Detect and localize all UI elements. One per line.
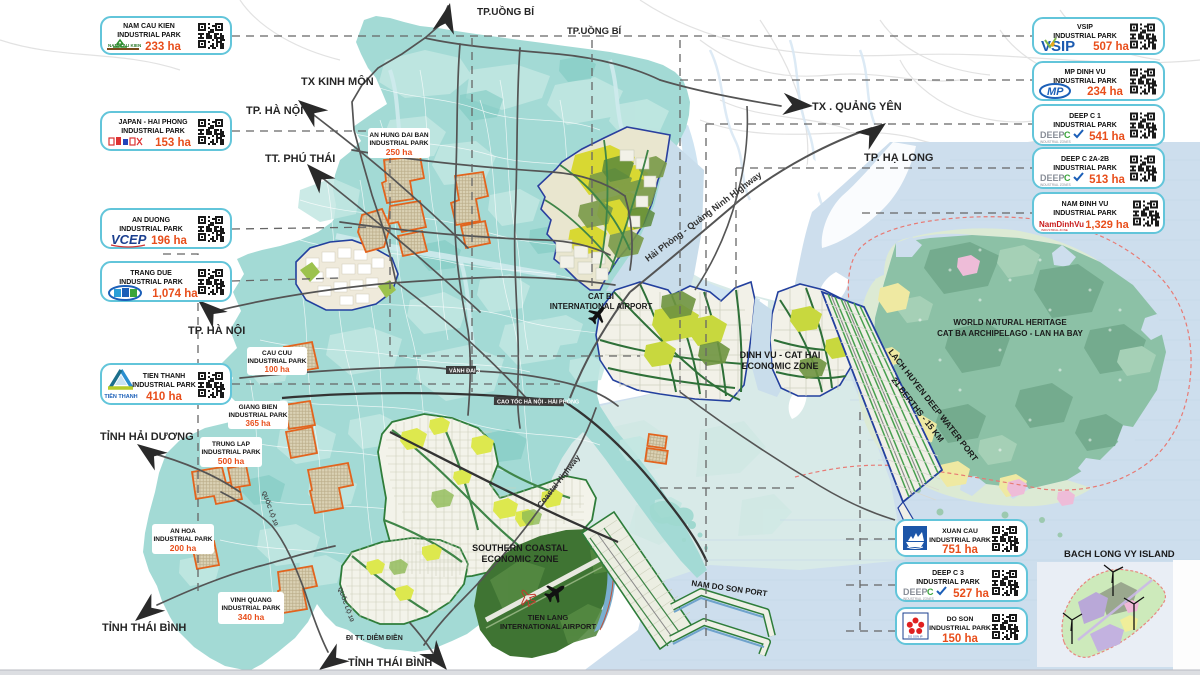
svg-text:TP. HẠ LONG: TP. HẠ LONG [864,152,933,164]
svg-text:ECONOMIC ZONE: ECONOMIC ZONE [741,361,818,371]
svg-text:INDUSTRIAL PARK: INDUSTRIAL PARK [117,32,181,39]
svg-text:INDUSTRIAL PARK: INDUSTRIAL PARK [1053,78,1117,85]
svg-text:JAPAN - HAI PHONG: JAPAN - HAI PHONG [118,119,188,126]
svg-text:INDUSTRIAL PARK: INDUSTRIAL PARK [370,140,429,147]
svg-text:TIEN LANG: TIEN LANG [528,613,569,622]
svg-text:C: C [927,587,934,597]
svg-text:MP DINH VU: MP DINH VU [1064,69,1105,76]
svg-text:BACH LONG VY ISLAND: BACH LONG VY ISLAND [1064,549,1175,560]
svg-text:INDUSTRIAL PARK: INDUSTRIAL PARK [929,537,991,544]
svg-text:INDUSTRIAL PARK: INDUSTRIAL PARK [119,279,183,286]
svg-text:VÀNH ĐAI 3: VÀNH ĐAI 3 [449,368,480,375]
svg-text:153 ha: 153 ha [155,137,191,149]
svg-text:TIEN THANH: TIEN THANH [143,373,185,380]
svg-text:TX . QUẢNG YÊN: TX . QUẢNG YÊN [812,100,902,113]
svg-text:INDUSTRIAL PARK: INDUSTRIAL PARK [229,412,288,419]
svg-text:TP.UỒNG BÍ: TP.UỒNG BÍ [477,5,534,18]
svg-text:CAT BA ARCHIPELAGO - LAN HA BA: CAT BA ARCHIPELAGO - LAN HA BAY [937,329,1083,338]
svg-text:CAU CUU: CAU CUU [262,350,292,357]
svg-text:TỈNH HẢI DƯƠNG: TỈNH HẢI DƯƠNG [100,430,194,443]
svg-text:DEEP: DEEP [1040,173,1065,183]
svg-text:513 ha: 513 ha [1089,174,1125,186]
svg-text:INDUSTRIAL PARK: INDUSTRIAL PARK [121,128,185,135]
svg-text:TỈNH THÁI BÌNH: TỈNH THÁI BÌNH [348,656,432,669]
svg-text:XUAN CAU: XUAN CAU [942,528,978,535]
svg-text:751 ha: 751 ha [942,544,978,556]
svg-text:DEEP: DEEP [903,587,928,597]
svg-text:DEEP: DEEP [1040,130,1065,140]
svg-text:DINH VU - CAT HAI: DINH VU - CAT HAI [740,350,821,360]
svg-text:AN HUNG DAI BAN: AN HUNG DAI BAN [369,132,429,139]
svg-text:INDUSTRIAL ZONE: INDUSTRIAL ZONE [1041,228,1068,232]
svg-text:233 ha: 233 ha [145,41,181,53]
svg-text:NAM CAU KIEN: NAM CAU KIEN [123,23,175,30]
svg-text:200 ha: 200 ha [170,543,197,553]
svg-text:INDUSTRIAL PARK: INDUSTRIAL PARK [1053,165,1117,172]
svg-text:INTERNATIONAL AIRPORT: INTERNATIONAL AIRPORT [500,622,597,631]
svg-text:150 ha: 150 ha [942,633,978,645]
svg-text:TỈNH THÁI BÌNH: TỈNH THÁI BÌNH [102,621,186,634]
svg-text:SOUTHERN COASTAL: SOUTHERN COASTAL [472,543,568,553]
svg-text:C: C [1064,130,1071,140]
svg-text:527 ha: 527 ha [953,588,989,600]
svg-text:GIANG BIEN: GIANG BIEN [239,404,278,411]
svg-text:196 ha: 196 ha [151,235,187,247]
svg-text:INDUSTRIAL PARK: INDUSTRIAL PARK [1053,122,1117,129]
svg-text:TP. HÀ NỘI: TP. HÀ NỘI [188,324,245,337]
svg-text:INDUSTRIAL PARK: INDUSTRIAL PARK [132,382,196,389]
svg-text:NAM ĐINH VU: NAM ĐINH VU [1062,201,1109,208]
svg-text:INDUSTRIAL PARK: INDUSTRIAL PARK [929,625,991,632]
svg-text:TT. PHÚ THÁI: TT. PHÚ THÁI [265,152,335,165]
svg-text:INDUSTRIAL ZONES: INDUSTRIAL ZONES [1040,183,1071,187]
svg-text:TP. HÀ NỘI: TP. HÀ NỘI [246,104,303,117]
svg-text:INDUSTRIAL ZONES: INDUSTRIAL ZONES [903,597,934,601]
svg-text:DO SON IP: DO SON IP [908,635,923,639]
svg-text:NAM CAU KIEN: NAM CAU KIEN [108,43,141,48]
svg-text:DEEP C 3: DEEP C 3 [932,570,964,577]
svg-text:CAT BI: CAT BI [588,292,614,301]
svg-text:INDUSTRIAL PARK: INDUSTRIAL PARK [916,579,980,586]
svg-text:100 ha: 100 ha [265,365,290,374]
svg-text:ECONOMIC ZONE: ECONOMIC ZONE [481,554,558,564]
svg-text:365 ha: 365 ha [246,419,271,428]
svg-text:TP.UỒNG BÍ: TP.UỒNG BÍ [567,25,622,37]
svg-text:340 ha: 340 ha [238,612,265,622]
svg-text:VCEP: VCEP [111,232,147,247]
svg-text:DEEP C 2A-2B: DEEP C 2A-2B [1061,156,1109,163]
svg-text:MP: MP [1047,86,1064,98]
svg-text:TX KINH MÔN: TX KINH MÔN [301,75,374,88]
svg-text:507 ha: 507 ha [1093,41,1129,53]
svg-text:500 ha: 500 ha [218,456,245,466]
svg-text:TRANG DUE: TRANG DUE [130,270,172,277]
svg-text:INDUSTRIAL PARK: INDUSTRIAL PARK [202,449,261,456]
svg-text:INDUSTRIAL ZONES: INDUSTRIAL ZONES [1040,140,1071,144]
svg-text:1,074 ha: 1,074 ha [152,288,198,300]
svg-text:DEEP C 1: DEEP C 1 [1069,113,1101,120]
svg-text:AN DUONG: AN DUONG [132,217,171,224]
svg-text:INDUSTRIAL PARK: INDUSTRIAL PARK [154,536,213,543]
svg-text:1,329 ha: 1,329 ha [1085,219,1129,231]
svg-text:VSIP: VSIP [1077,24,1093,31]
svg-text:INDUSTRIAL PARK: INDUSTRIAL PARK [248,358,307,365]
svg-text:541 ha: 541 ha [1089,131,1125,143]
svg-text:VINH QUANG: VINH QUANG [230,597,272,604]
svg-text:410 ha: 410 ha [146,391,182,403]
svg-text:TRUNG LAP: TRUNG LAP [212,441,251,448]
svg-text:INDUSTRIAL PARK: INDUSTRIAL PARK [1053,210,1117,217]
svg-text:DO SON: DO SON [947,616,974,623]
svg-text:AN HOA: AN HOA [170,528,196,535]
svg-text:INDUSTRIAL PARK: INDUSTRIAL PARK [222,605,281,612]
svg-text:TIÊN THANH: TIÊN THANH [104,392,137,400]
svg-text:250 ha: 250 ha [386,147,413,157]
svg-text:C: C [1064,173,1071,183]
svg-text:WORLD NATURAL HERITAGE: WORLD NATURAL HERITAGE [953,318,1067,327]
svg-text:CAO TỐC HÀ NỘI - HẢI PHÒNG: CAO TỐC HÀ NỘI - HẢI PHÒNG [497,398,579,406]
svg-text:234 ha: 234 ha [1087,86,1123,98]
